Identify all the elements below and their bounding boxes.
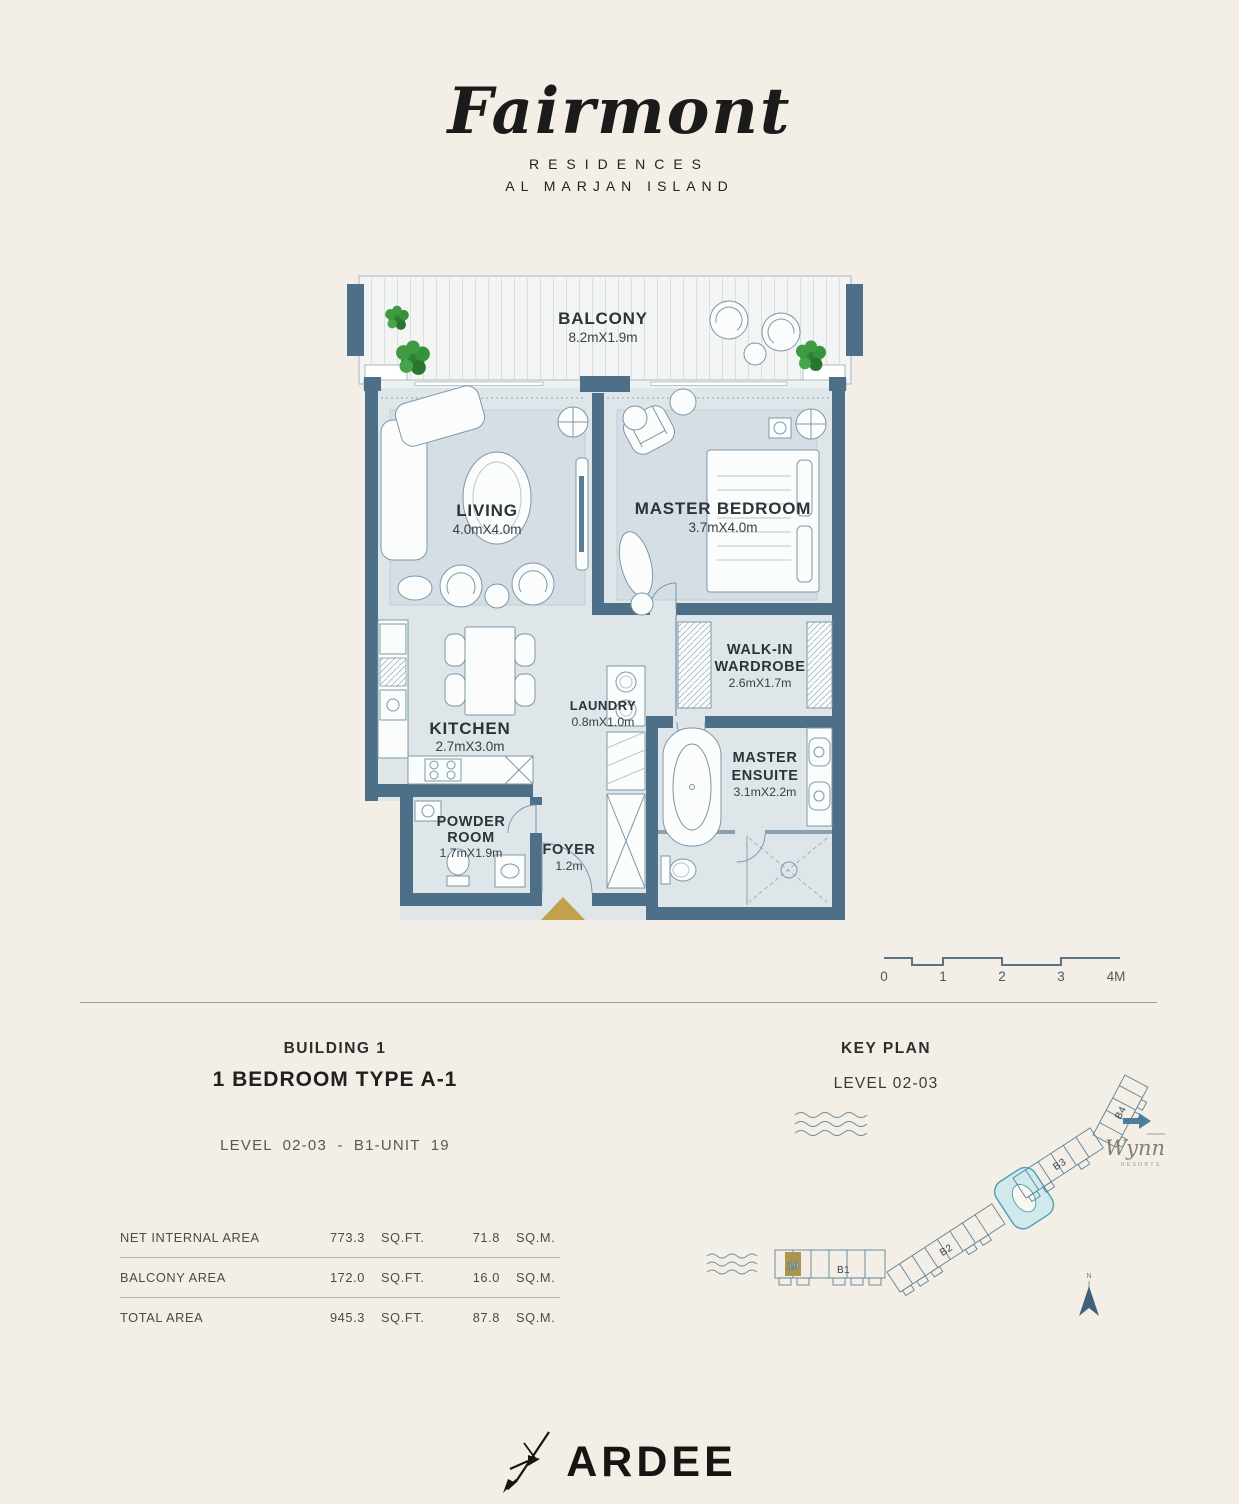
table-row: BALCONY AREA 172.0 SQ.FT. 16.0 SQ.M. [120, 1258, 560, 1298]
foyer-label: FOYER [543, 842, 596, 858]
table-row: NET INTERNAL AREA 773.3 SQ.FT. 71.8 SQ.M… [120, 1218, 560, 1258]
area-label: NET INTERNAL AREA [120, 1230, 310, 1245]
building-b2: B2 [887, 1204, 1008, 1297]
ensuite-label-1: MASTER [733, 750, 798, 766]
unit-info: BUILDING 1 1 BEDROOM TYPE A-1 LEVEL 02-0… [135, 1040, 535, 1154]
section-divider [80, 1002, 1157, 1003]
building-b1: 19 B1 [775, 1250, 885, 1285]
brand-island: AL MARJAN ISLAND [0, 178, 1239, 194]
wynn-sub: RESORTS [1121, 1162, 1162, 1168]
brochure-page: Fairmont RESIDENCES AL MARJAN ISLAND [0, 0, 1239, 1504]
developer-logo: ARDEE [0, 1430, 1239, 1494]
scale-1: 1 [939, 969, 947, 984]
area-sqft-unit: SQ.FT. [365, 1230, 435, 1245]
ardee-wordmark: ARDEE [566, 1430, 737, 1494]
area-table: NET INTERNAL AREA 773.3 SQ.FT. 71.8 SQ.M… [120, 1218, 560, 1337]
brand-logo: Fairmont [0, 70, 1239, 154]
balcony-label: BALCONY [558, 309, 648, 328]
scale-bar: 0 1 2 3 4M [872, 946, 1128, 988]
unit-type-label: 1 BEDROOM TYPE A-1 [135, 1068, 535, 1092]
unit-level-label: LEVEL 02-03 - B1-UNIT 19 [135, 1137, 535, 1154]
compass-icon: N [1079, 1273, 1099, 1316]
highlighted-unit-number: 19 [787, 1261, 799, 1272]
living-dims: 4.0mX4.0m [452, 522, 521, 537]
brand-header: Fairmont RESIDENCES AL MARJAN ISLAND [0, 70, 1239, 194]
ensuite-dims: 3.1mX2.2m [734, 785, 797, 799]
kitchen-label: KITCHEN [429, 719, 510, 738]
area-sqft-unit: SQ.FT. [365, 1310, 435, 1325]
area-sqm-unit: SQ.M. [500, 1230, 560, 1245]
master-bedroom-dims: 3.7mX4.0m [688, 520, 757, 535]
living-label: LIVING [456, 501, 517, 520]
balcony-dims: 8.2mX1.9m [568, 330, 637, 345]
laundry-label: LAUNDRY [570, 698, 637, 713]
area-sqm: 71.8 [435, 1230, 500, 1245]
area-sqft: 945.3 [310, 1310, 365, 1325]
wardrobe-label-2: WARDROBE [715, 659, 806, 675]
floor-plan: BALCONY 8.2mX1.9m [345, 270, 865, 930]
foyer-dims: 1.2m [555, 859, 582, 873]
area-sqm: 16.0 [435, 1270, 500, 1285]
key-plan-map: 19 B1 B2 B3 [695, 1060, 1175, 1330]
key-plan-title: KEY PLAN [786, 1040, 986, 1058]
area-sqft: 773.3 [310, 1230, 365, 1245]
brand-residences: RESIDENCES [0, 156, 1239, 172]
ardee-star-icon [502, 1430, 558, 1494]
area-sqft: 172.0 [310, 1270, 365, 1285]
scale-4: 4M [1107, 969, 1126, 984]
area-sqm: 87.8 [435, 1310, 500, 1325]
table-row: TOTAL AREA 945.3 SQ.FT. 87.8 SQ.M. [120, 1298, 560, 1337]
ensuite-label-2: ENSUITE [731, 768, 798, 784]
compass-n: N [1086, 1273, 1091, 1280]
powder-label-2: ROOM [447, 830, 495, 846]
building-label: BUILDING 1 [135, 1040, 535, 1058]
area-label: BALCONY AREA [120, 1270, 310, 1285]
balcony-area: BALCONY 8.2mX1.9m [347, 276, 863, 384]
scale-3: 3 [1057, 969, 1065, 984]
wynn-logo: Wynn [1105, 1136, 1165, 1160]
b1-label: B1 [837, 1265, 850, 1276]
wardrobe-dims: 2.6mX1.7m [729, 676, 792, 690]
wynn-marker: Wynn RESORTS [1105, 1113, 1165, 1168]
scale-2: 2 [998, 969, 1006, 984]
area-sqm-unit: SQ.M. [500, 1310, 560, 1325]
area-label: TOTAL AREA [120, 1310, 310, 1325]
area-sqft-unit: SQ.FT. [365, 1270, 435, 1285]
wardrobe-label-1: WALK-IN [727, 642, 793, 658]
area-sqm-unit: SQ.M. [500, 1270, 560, 1285]
master-bedroom-label: MASTER BEDROOM [635, 499, 811, 518]
kitchen-dims: 2.7mX3.0m [435, 739, 504, 754]
central-building [990, 1163, 1058, 1233]
powder-label-1: POWDER [437, 814, 506, 830]
laundry-dims: 0.8mX1.0m [572, 715, 635, 729]
powder-dims: 1.7mX1.9m [440, 846, 503, 860]
scale-0: 0 [880, 969, 888, 984]
